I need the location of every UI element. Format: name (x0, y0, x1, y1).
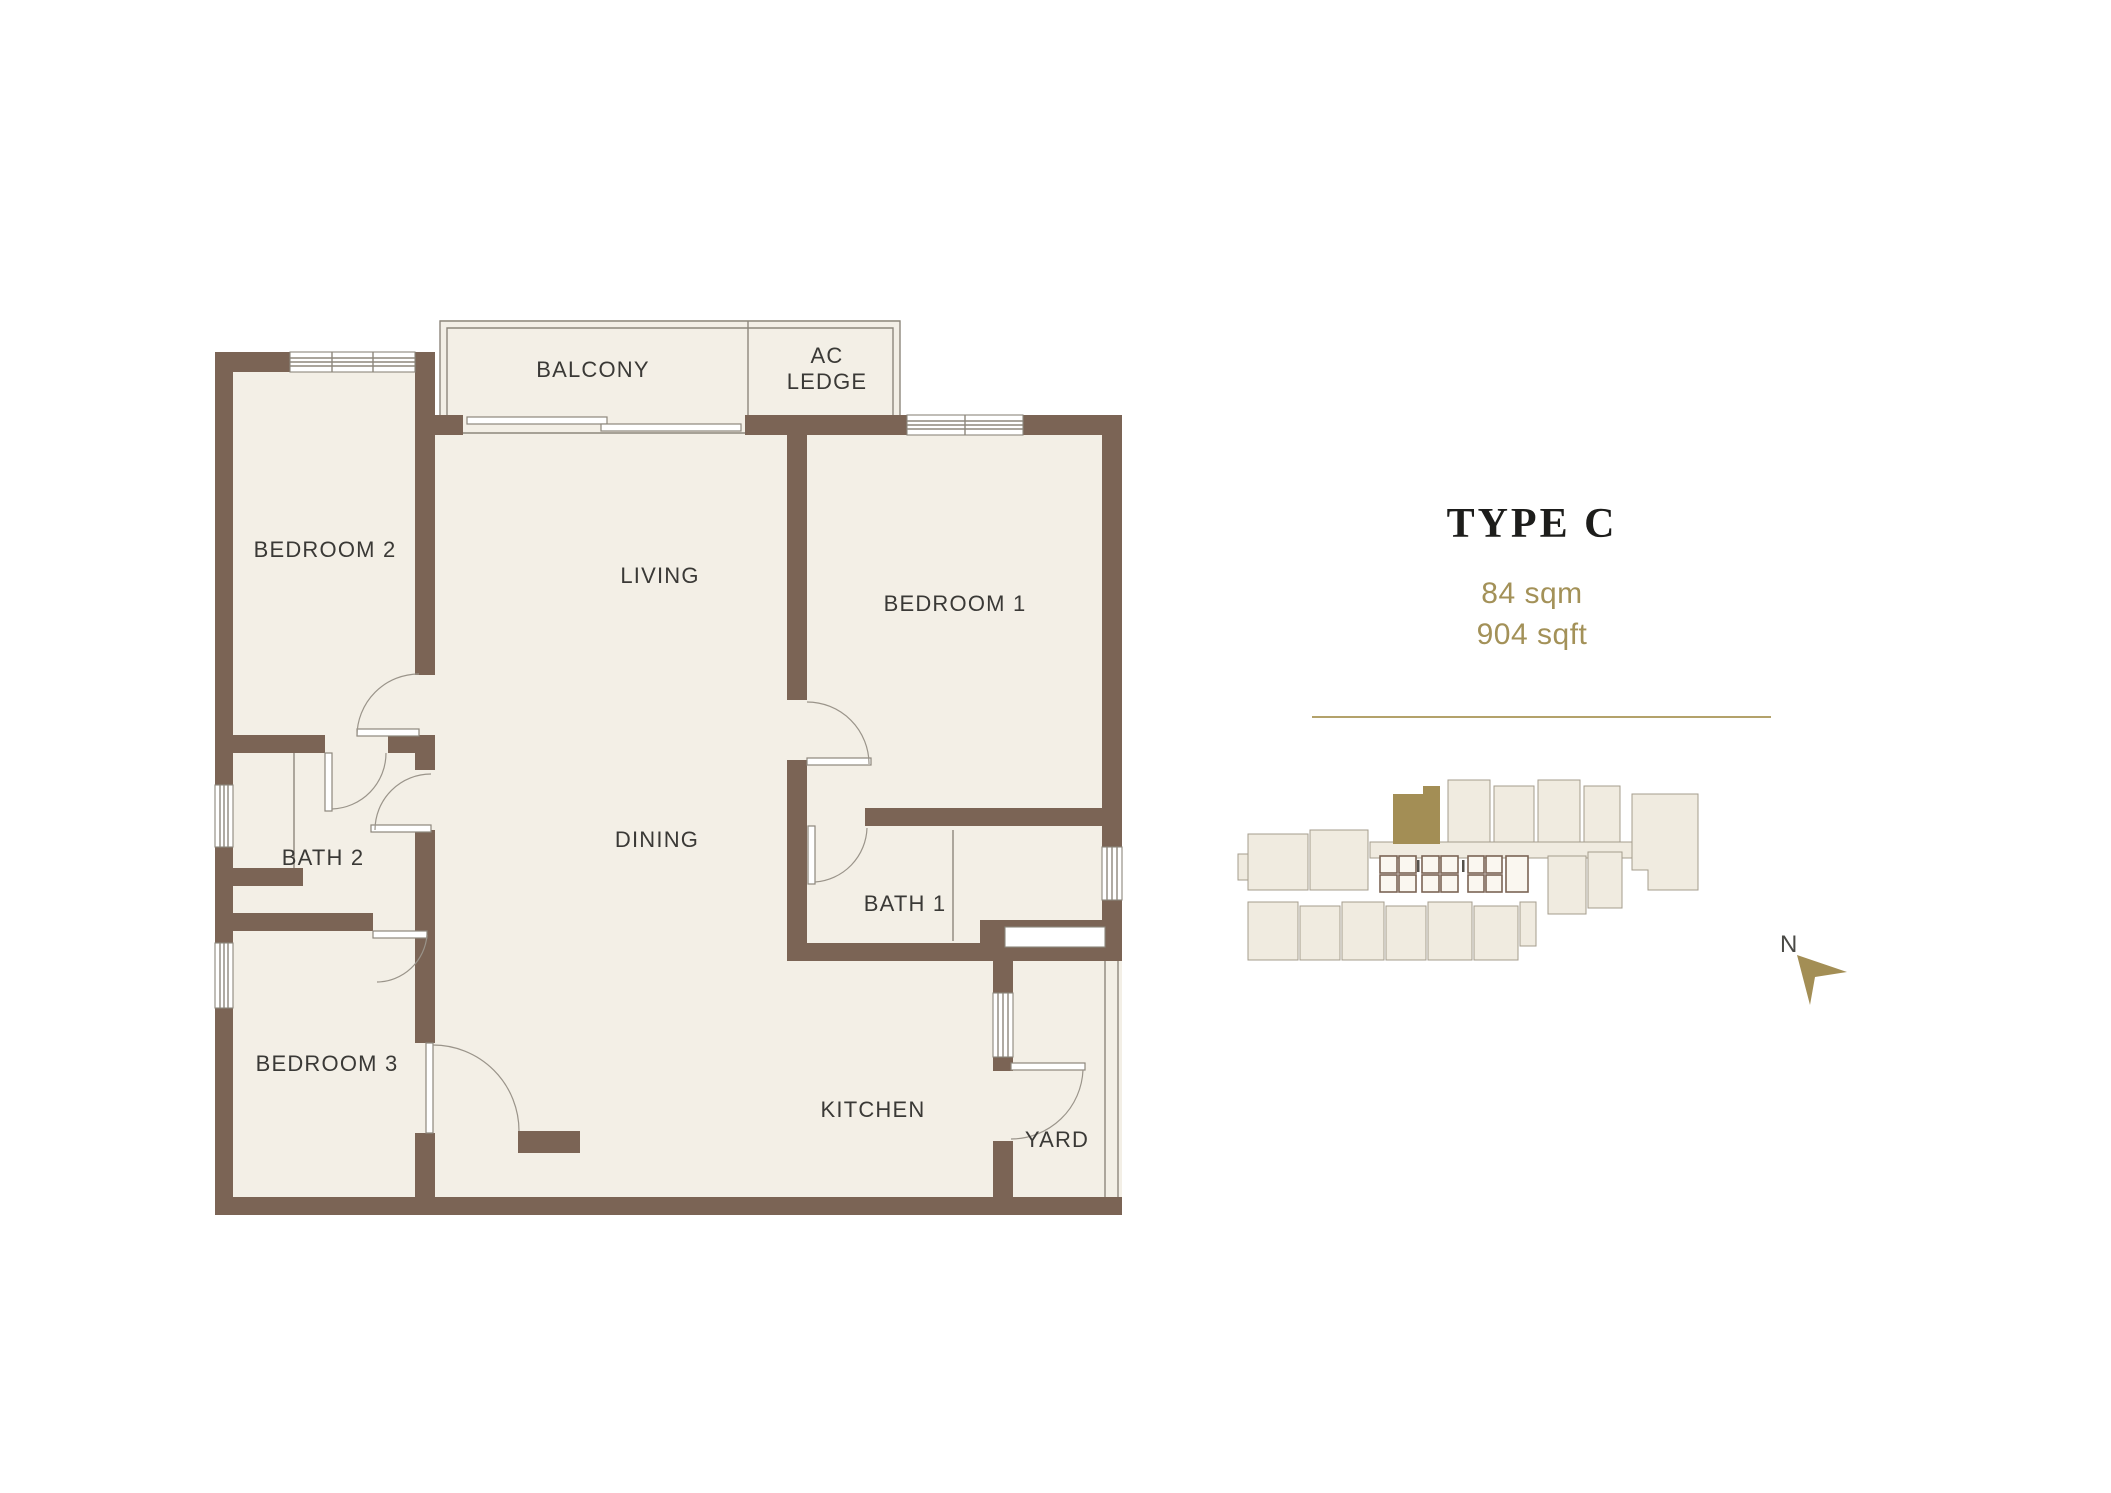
room-label-dining: DINING (615, 827, 699, 852)
north-label: N (1780, 931, 1798, 958)
room-label-bedroom2: BEDROOM 2 (254, 537, 397, 562)
gold-divider-line (1312, 716, 1771, 718)
room-label-bedroom3: BEDROOM 3 (256, 1051, 399, 1076)
floor-plan: BEDROOM 2 BALCONY AC LEDGE LIVING BEDROO… (205, 315, 1125, 1225)
floor-areas (215, 320, 1122, 1215)
room-label-kitchen: KITCHEN (821, 1097, 926, 1122)
room-label-balcony: BALCONY (536, 357, 650, 382)
north-arrow-icon: N (1780, 931, 1847, 1005)
unit-info-panel: TYPE C 84 sqm 904 sqft (1292, 500, 1772, 655)
unit-area-sqft: 904 sqft (1292, 615, 1772, 656)
bath1-niche-inset (1005, 927, 1105, 947)
highlighted-unit (1393, 786, 1440, 844)
room-label-yard: YARD (1025, 1127, 1089, 1152)
key-plan: N (1230, 760, 1870, 1040)
room-label-ac-ledge-1: AC (811, 343, 844, 368)
room-label-bath2: BATH 2 (282, 845, 365, 870)
unit-area-sqm: 84 sqm (1292, 574, 1772, 615)
room-label-bedroom1: BEDROOM 1 (884, 591, 1027, 616)
room-label-living: LIVING (620, 563, 699, 588)
brochure-page: BEDROOM 2 BALCONY AC LEDGE LIVING BEDROO… (0, 0, 2111, 1493)
room-label-bath1: BATH 1 (864, 891, 947, 916)
unit-type-title: TYPE C (1292, 500, 1772, 548)
key-plan-core (1380, 856, 1528, 892)
room-label-ac-ledge-2: LEDGE (787, 369, 868, 394)
